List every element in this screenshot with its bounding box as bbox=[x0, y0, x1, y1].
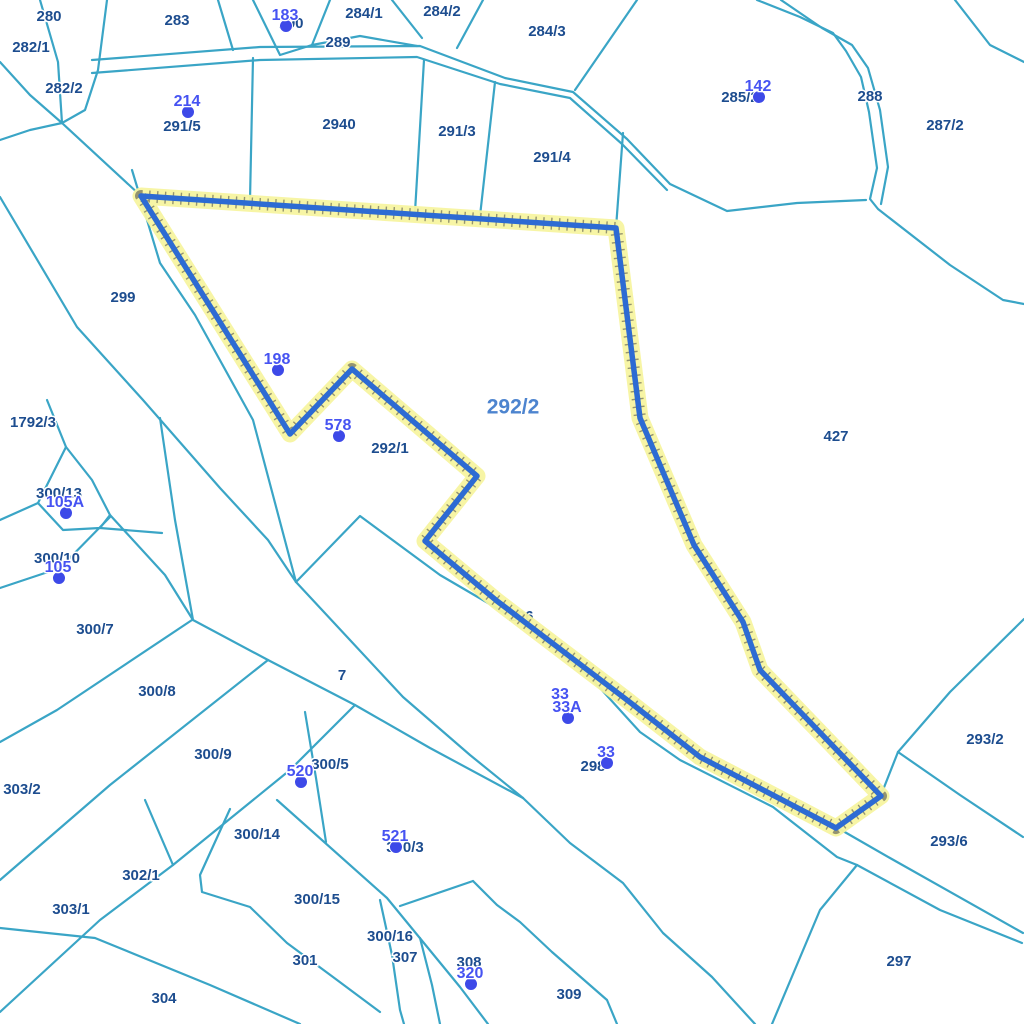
parcel-label-7: 7 bbox=[338, 667, 346, 684]
parcel-label-300-15: 300/15 bbox=[294, 891, 340, 908]
parcel-boundary-line-17 bbox=[457, 0, 483, 48]
parcel-boundary-line-43 bbox=[898, 619, 1024, 752]
address-pin-142-2[interactable]: 142 bbox=[745, 78, 772, 95]
parcel-label-300-8: 300/8 bbox=[138, 683, 176, 700]
parcel-label-292-1: 292/1 bbox=[371, 440, 409, 457]
parcel-label-300-9: 300/9 bbox=[194, 746, 232, 763]
parcel-label-307: 307 bbox=[392, 949, 417, 966]
parcel-boundary-line-19 bbox=[575, 0, 637, 90]
parcel-label-297: 297 bbox=[886, 953, 911, 970]
parcel-label-289: 289 bbox=[325, 34, 350, 51]
parcel-boundary-line-4 bbox=[955, 0, 1024, 62]
parcel-label-427: 427 bbox=[823, 428, 848, 445]
parcel-boundary-line-30 bbox=[0, 503, 38, 520]
parcel-boundary-line-9 bbox=[62, 123, 141, 196]
parcel-boundary-line-32 bbox=[0, 660, 268, 880]
parcel-boundary-line-44 bbox=[898, 752, 1023, 837]
parcel-boundary-line-2 bbox=[757, 0, 1024, 304]
address-pin-33A-10[interactable]: 33A bbox=[552, 699, 582, 716]
address-pin-105A-5[interactable]: 105A bbox=[46, 494, 85, 511]
parcel-label-1792-3: 1792/3 bbox=[10, 414, 56, 431]
parcel-label-284-1: 284/1 bbox=[345, 5, 383, 22]
cadastral-map-svg: 296280282/1283290284/1284/2289284/3285/2… bbox=[0, 0, 1024, 1024]
parcel-label-288: 288 bbox=[857, 88, 882, 105]
parcel-label-284-3: 284/3 bbox=[528, 23, 566, 40]
parcel-label-291-4: 291/4 bbox=[533, 149, 571, 166]
parcel-boundary-line-6 bbox=[62, 0, 107, 123]
address-pin-521-8[interactable]: 521 bbox=[382, 828, 409, 845]
parcel-label-300-7: 300/7 bbox=[76, 621, 114, 638]
highlighted-parcel-292-2[interactable] bbox=[141, 196, 881, 828]
parcel-label-293-6: 293/6 bbox=[930, 833, 968, 850]
parcel-boundary-line-41 bbox=[473, 881, 617, 1024]
parcel-boundary-line-15 bbox=[480, 82, 495, 216]
parcel-label-283: 283 bbox=[164, 12, 189, 29]
parcel-label-300-14: 300/14 bbox=[234, 826, 281, 843]
parcel-label-304: 304 bbox=[151, 990, 177, 1007]
parcel-boundary-line-8 bbox=[0, 123, 62, 140]
highlighted-parcel-boundary-ticks bbox=[141, 196, 881, 828]
parcel-boundary-line-16 bbox=[616, 133, 623, 228]
parcel-label-291-3: 291/3 bbox=[438, 123, 476, 140]
parcel-label-299: 299 bbox=[110, 289, 135, 306]
address-pin-320-12[interactable]: 320 bbox=[457, 965, 484, 982]
parcel-label-280: 280 bbox=[36, 8, 61, 25]
parcel-label-303-1: 303/1 bbox=[52, 901, 90, 918]
parcel-label-291-5: 291/5 bbox=[163, 118, 201, 135]
parcel-label-309: 309 bbox=[556, 986, 581, 1003]
parcel-boundary-line-10 bbox=[218, 0, 233, 50]
address-pin-183-0[interactable]: 183 bbox=[272, 7, 299, 24]
parcel-label-300-5: 300/5 bbox=[311, 756, 349, 773]
address-pin-214-1[interactable]: 214 bbox=[174, 93, 201, 110]
address-pin-105-6[interactable]: 105 bbox=[45, 559, 72, 576]
parcel-label-293-2: 293/2 bbox=[966, 731, 1004, 748]
address-pin-33-11[interactable]: 33 bbox=[597, 744, 615, 761]
parcel-boundary-line-27 bbox=[100, 528, 162, 533]
parcel-boundary-line-47 bbox=[857, 865, 1022, 943]
parcel-boundary-line-48 bbox=[772, 865, 857, 1024]
parcel-boundary-line-31 bbox=[0, 620, 192, 742]
parcel-boundary-line-36 bbox=[200, 809, 380, 1012]
parcel-boundary-line-0 bbox=[92, 46, 866, 211]
parcel-label-302-1: 302/1 bbox=[122, 867, 160, 884]
parcel-label-287-2: 287/2 bbox=[926, 117, 964, 134]
parcel-label-282-2: 282/2 bbox=[45, 80, 83, 97]
parcel-boundary-line-34 bbox=[145, 800, 173, 865]
parcel-boundary-line-18 bbox=[392, 0, 422, 38]
parcel-boundary-line-21 bbox=[0, 197, 296, 582]
parcel-boundary-line-14 bbox=[415, 60, 424, 212]
parcel-label-284-2: 284/2 bbox=[423, 3, 461, 20]
parcel-boundary-line-13 bbox=[250, 58, 253, 200]
parcel-label-303-2: 303/2 bbox=[3, 781, 41, 798]
parcel-label-301: 301 bbox=[292, 952, 317, 969]
highlighted-parcel-label: 292/2 bbox=[487, 396, 540, 419]
parcel-label-300-16: 300/16 bbox=[367, 928, 413, 945]
map-canvas[interactable]: 296280282/1283290284/1284/2289284/3285/2… bbox=[0, 0, 1024, 1024]
address-pin-578-4[interactable]: 578 bbox=[325, 417, 352, 434]
parcel-label-2940: 2940 bbox=[322, 116, 355, 133]
parcel-label-282-1: 282/1 bbox=[12, 39, 50, 56]
address-pin-520-7[interactable]: 520 bbox=[287, 763, 314, 780]
parcel-boundary-line-35 bbox=[0, 928, 300, 1024]
address-pin-198-3[interactable]: 198 bbox=[264, 351, 291, 368]
highlighted-parcel-glow bbox=[141, 196, 881, 828]
parcel-boundary-line-40 bbox=[400, 881, 473, 906]
